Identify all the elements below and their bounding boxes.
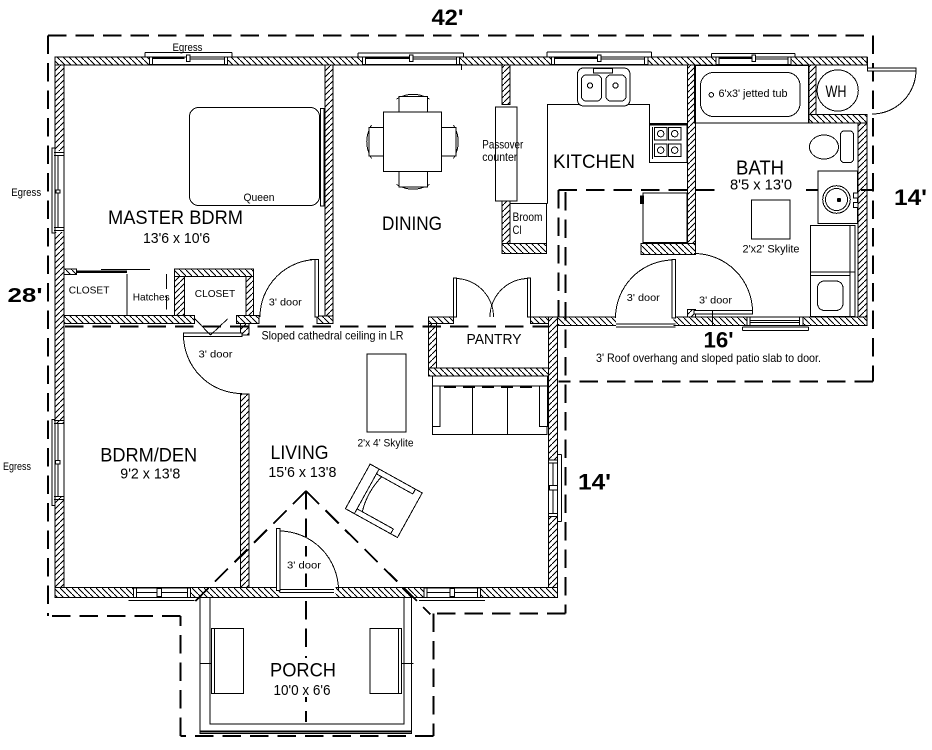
svg-text:DINING: DINING	[382, 214, 442, 235]
svg-text:3' door: 3' door	[287, 560, 322, 571]
svg-text:Hatches: Hatches	[133, 291, 170, 303]
svg-text:BDRM/DEN: BDRM/DEN	[100, 446, 197, 467]
svg-text:Queen: Queen	[244, 192, 275, 204]
svg-text:MASTER BDRM: MASTER BDRM	[108, 208, 243, 229]
svg-text:LIVING: LIVING	[271, 443, 329, 464]
svg-text:Egress: Egress	[11, 187, 41, 199]
svg-text:8'5 x 13'0: 8'5 x 13'0	[730, 177, 792, 194]
svg-text:PORCH: PORCH	[270, 661, 336, 682]
svg-text:CLOSET: CLOSET	[69, 286, 110, 297]
svg-text:CLOSET: CLOSET	[195, 289, 235, 300]
svg-text:Broom: Broom	[513, 210, 543, 224]
svg-text:13'6 x 10'6: 13'6 x 10'6	[143, 230, 210, 247]
svg-text:3' Roof overhang and sloped pa: 3' Roof overhang and sloped patio slab t…	[596, 351, 821, 365]
svg-text:PANTRY: PANTRY	[467, 332, 522, 348]
svg-text:Egress: Egress	[173, 42, 203, 54]
svg-text:counter: counter	[482, 150, 517, 164]
svg-text:Cl: Cl	[513, 223, 522, 237]
svg-text:10'0 x 6'6: 10'0 x 6'6	[274, 682, 331, 699]
svg-text:6'x3' jetted tub: 6'x3' jetted tub	[719, 88, 788, 100]
svg-text:15'6 x 13'8: 15'6 x 13'8	[268, 464, 336, 481]
svg-text:KITCHEN: KITCHEN	[553, 152, 635, 173]
svg-text:2'x 4' Skylite: 2'x 4' Skylite	[358, 438, 414, 450]
svg-text:Egress: Egress	[3, 461, 31, 473]
svg-text:28': 28'	[8, 284, 43, 307]
svg-text:9'2 x 13'8: 9'2 x 13'8	[120, 466, 180, 483]
svg-text:3' door: 3' door	[627, 293, 661, 304]
svg-text:16': 16'	[704, 328, 734, 353]
svg-text:2'x2' Skylite: 2'x2' Skylite	[743, 244, 800, 256]
svg-text:14': 14'	[894, 185, 927, 210]
svg-text:3' door: 3' door	[699, 295, 733, 306]
svg-text:Sloped cathedral ceiling in LR: Sloped cathedral ceiling in LR	[262, 329, 404, 343]
svg-text:3' door: 3' door	[269, 297, 303, 308]
svg-text:3' door: 3' door	[199, 350, 234, 361]
svg-text:14': 14'	[578, 470, 611, 495]
svg-text:42': 42'	[432, 5, 464, 30]
svg-text:WH: WH	[826, 83, 847, 101]
